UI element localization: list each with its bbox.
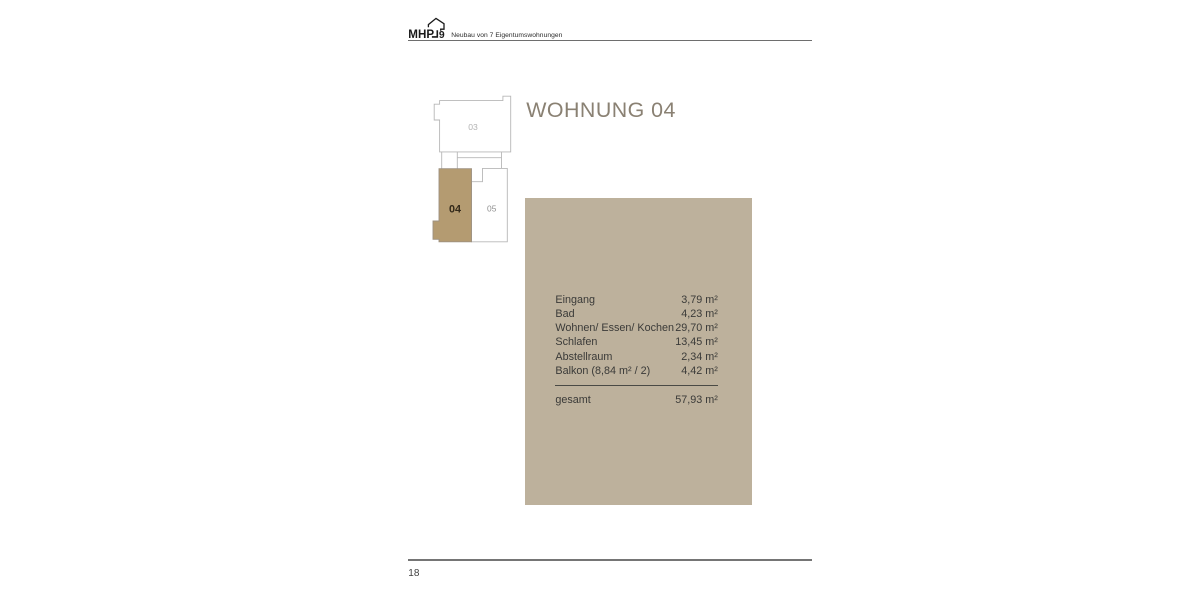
svg-text:05: 05	[487, 204, 497, 214]
svg-text:03: 03	[468, 122, 478, 132]
svg-text:04: 04	[449, 204, 461, 216]
